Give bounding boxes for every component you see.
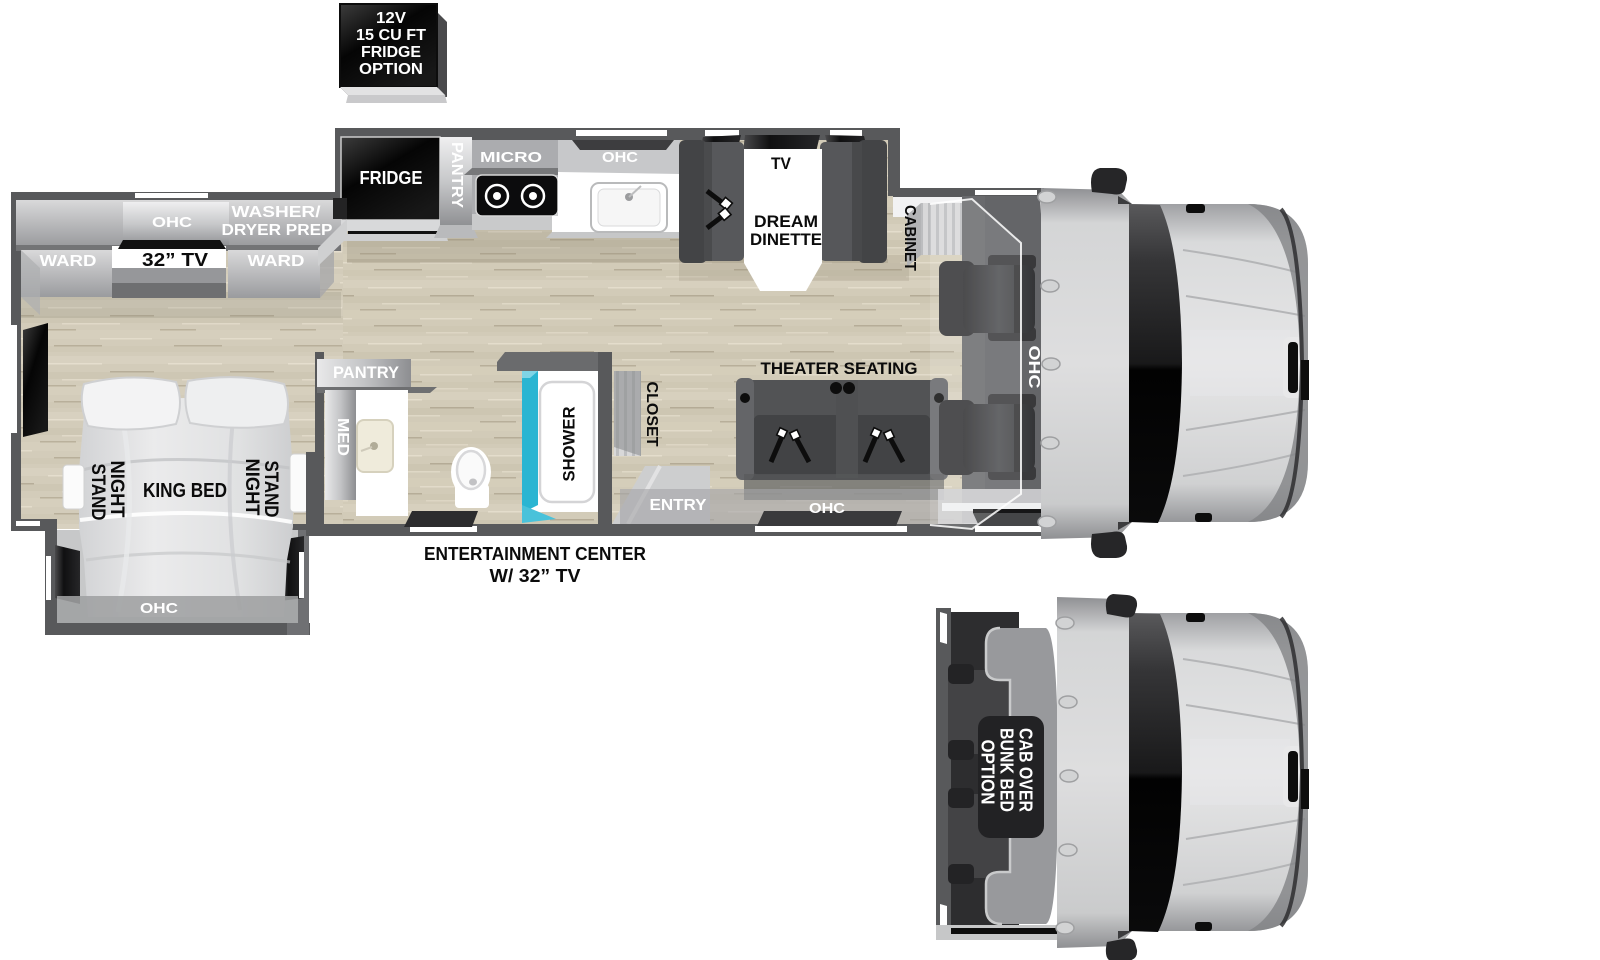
svg-text:NIGHT: NIGHT [241, 459, 262, 516]
svg-text:WARD: WARD [40, 253, 97, 270]
svg-text:DINETTE: DINETTE [750, 230, 822, 249]
svg-text:OHC: OHC [1025, 346, 1042, 390]
svg-text:15 CU FT: 15 CU FT [356, 27, 426, 44]
svg-text:OPTION: OPTION [977, 740, 997, 805]
svg-text:DREAM: DREAM [754, 212, 818, 231]
svg-text:FRIDGE: FRIDGE [360, 168, 423, 188]
svg-text:OHC: OHC [152, 214, 192, 231]
svg-text:MICRO: MICRO [480, 149, 542, 166]
svg-text:STAND: STAND [87, 464, 108, 521]
svg-text:CLOSET: CLOSET [643, 382, 660, 447]
svg-text:MED: MED [334, 418, 351, 456]
svg-text:DRYER PREP: DRYER PREP [222, 222, 333, 239]
svg-text:PANTRY: PANTRY [448, 142, 465, 208]
svg-text:STAND: STAND [260, 461, 281, 518]
svg-text:OPTION: OPTION [359, 61, 423, 78]
svg-text:CAB OVER: CAB OVER [1015, 728, 1035, 812]
svg-text:KING BED: KING BED [143, 480, 227, 502]
svg-text:FRIDGE: FRIDGE [361, 44, 421, 61]
svg-text:TV: TV [771, 154, 792, 173]
svg-text:CABINET: CABINET [901, 205, 918, 271]
svg-text:PANTRY: PANTRY [333, 363, 400, 382]
svg-text:BUNK BED: BUNK BED [996, 728, 1016, 812]
svg-text:THEATER SEATING: THEATER SEATING [761, 359, 918, 378]
svg-text:WARD: WARD [248, 253, 305, 270]
svg-text:OHC: OHC [809, 500, 845, 517]
svg-text:WASHER/: WASHER/ [232, 204, 322, 221]
svg-text:SHOWER: SHOWER [559, 407, 578, 482]
svg-text:NIGHT: NIGHT [106, 461, 127, 518]
svg-text:ENTERTAINMENT CENTER: ENTERTAINMENT CENTER [424, 544, 646, 564]
svg-text:12V: 12V [376, 10, 406, 27]
svg-text:ENTRY: ENTRY [650, 497, 707, 514]
svg-text:OHC: OHC [602, 149, 638, 166]
svg-text:32” TV: 32” TV [142, 250, 208, 270]
svg-text:OHC: OHC [140, 600, 178, 617]
svg-text:W/ 32” TV: W/ 32” TV [490, 566, 581, 586]
